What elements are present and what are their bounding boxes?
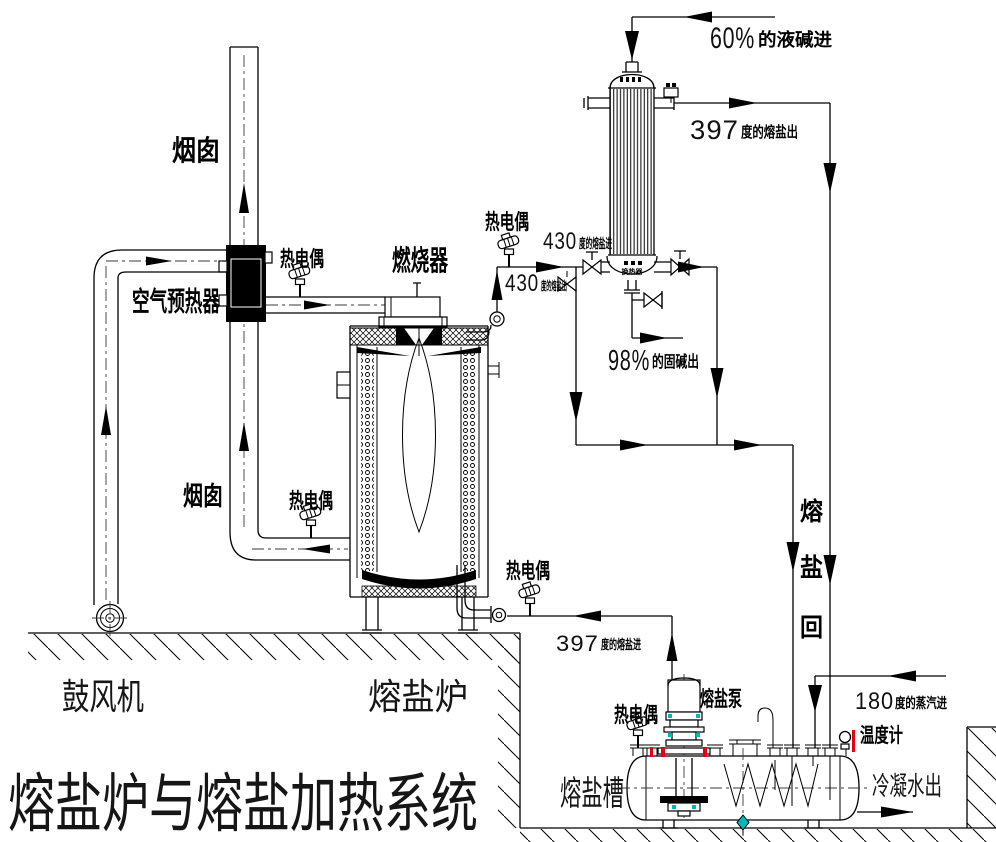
thermocouple-icon <box>517 580 541 616</box>
steam-in-text: 度的蒸汽进 <box>895 695 947 711</box>
air-preheater <box>219 245 272 322</box>
burner <box>379 283 447 327</box>
furnace-label: 熔盐炉 <box>368 676 468 717</box>
salt-return-char: 回 <box>800 614 823 642</box>
burner-label: 燃烧器 <box>392 245 449 276</box>
thermocouple-label: 热电偶 <box>614 703 658 727</box>
caustic-evaporator: 换热器 <box>583 12 775 344</box>
thermometer-label: 温度计 <box>860 723 903 747</box>
caustic-out-num: 98% <box>608 345 650 377</box>
thermometer-icon <box>840 730 856 756</box>
condensate-out-label: 冷凝水出 <box>872 771 942 801</box>
chimney-top-label: 烟囱 <box>172 135 220 166</box>
salt-in-397-text: 度的熔盐进 <box>601 637 641 652</box>
thermocouple-icon <box>496 231 520 267</box>
pump-label: 熔盐泵 <box>700 687 742 711</box>
valve-exchanger-inlet <box>583 252 601 274</box>
salt-in-397-num: 397 <box>556 631 599 656</box>
salt-return-char: 熔 <box>800 497 823 526</box>
exchanger-tag-label: 换热器 <box>622 267 644 276</box>
thermocouple-label: 热电偶 <box>506 559 550 583</box>
salt-out-430-text: 度的熔盐出 <box>541 278 567 293</box>
labels: 烟囱 空气预热器 燃烧器 烟囱 热电偶 热电偶 热电偶 热电偶 热电偶 60% … <box>8 22 947 840</box>
caustic-out-text: 的固碱出 <box>652 352 699 371</box>
chimney-duct-label: 烟囱 <box>183 481 223 511</box>
caustic-in-text: 的液碱进 <box>758 29 832 50</box>
steam-in-num: 180 <box>855 688 894 715</box>
valve-caustic-out <box>644 291 662 309</box>
diagram-canvas: 换热器 <box>0 0 996 842</box>
salt-return-char: 盐 <box>800 554 823 582</box>
caustic-in-num: 60% <box>710 22 755 55</box>
salt-out-397-text: 度的熔盐出 <box>741 123 798 141</box>
thermocouple-label: 热电偶 <box>289 489 333 513</box>
vent-pipe <box>758 708 773 748</box>
thermocouple-label: 热电偶 <box>485 210 529 234</box>
process-diagram: 换热器 <box>0 0 996 842</box>
tank-label: 熔盐槽 <box>560 775 624 813</box>
gauge-icon <box>664 83 678 103</box>
salt-out-430-num: 430 <box>505 270 539 297</box>
salt-out-397-num: 397 <box>690 115 739 145</box>
thermocouple-label: 热电偶 <box>280 247 324 271</box>
salt-in-430-num: 430 <box>543 228 577 255</box>
air-preheater-label: 空气预热器 <box>132 286 221 317</box>
diagram-title: 熔盐炉与熔盐加热系统 <box>8 768 478 840</box>
blower-label: 鼓风机 <box>62 676 144 717</box>
steam-coil <box>724 764 818 806</box>
salt-in-430-text: 度的熔盐进 <box>579 236 612 251</box>
